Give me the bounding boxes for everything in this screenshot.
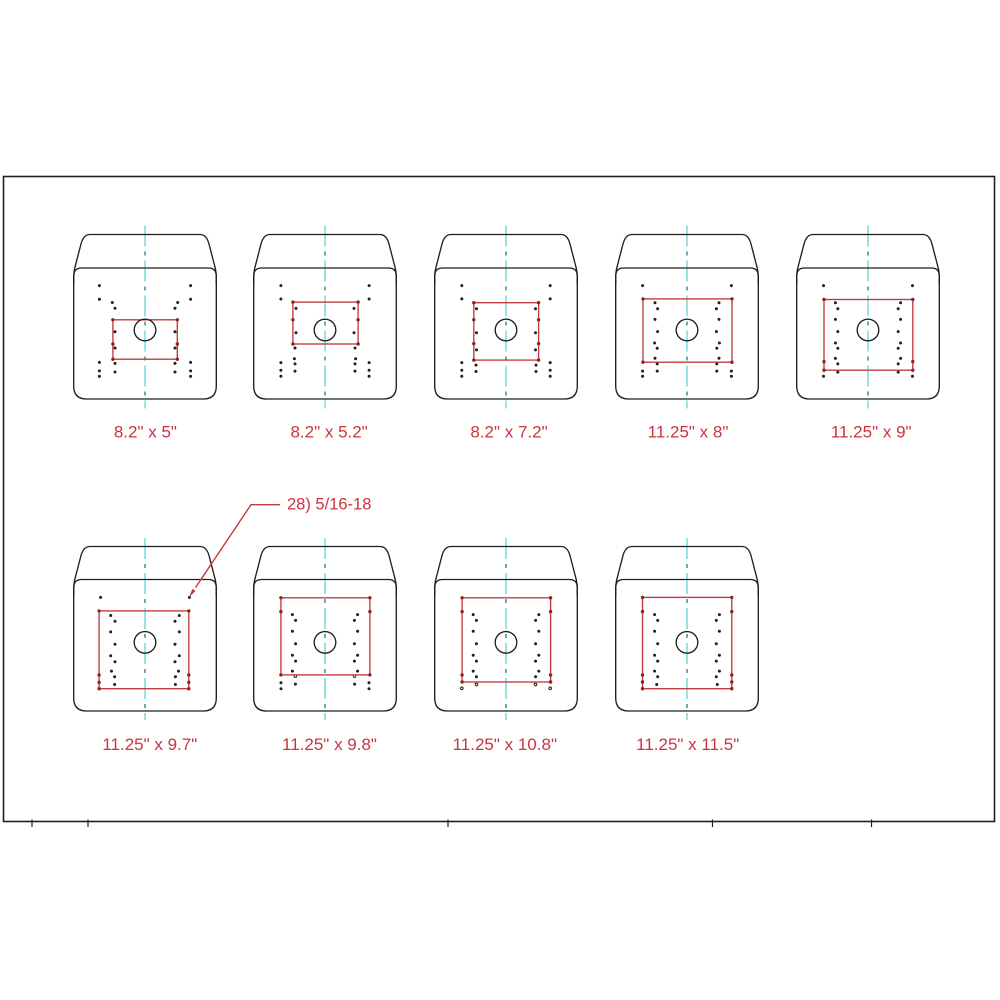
svg-text:8.2" x 5": 8.2" x 5"	[114, 423, 177, 442]
svg-text:11.25" x 9.7": 11.25" x 9.7"	[102, 735, 197, 754]
svg-text:11.25" x 11.5": 11.25" x 11.5"	[636, 735, 739, 754]
svg-text:8.2" x 7.2": 8.2" x 7.2"	[470, 423, 547, 442]
svg-text:28) 5/16-18: 28) 5/16-18	[287, 496, 371, 514]
svg-text:11.25" x 8": 11.25" x 8"	[648, 423, 729, 442]
svg-text:8.2" x 5.2": 8.2" x 5.2"	[290, 423, 367, 442]
svg-text:11.25" x 9": 11.25" x 9"	[831, 423, 912, 442]
svg-text:11.25" x 9.8": 11.25" x 9.8"	[282, 735, 377, 754]
svg-text:11.25" x 10.8": 11.25" x 10.8"	[453, 735, 557, 754]
